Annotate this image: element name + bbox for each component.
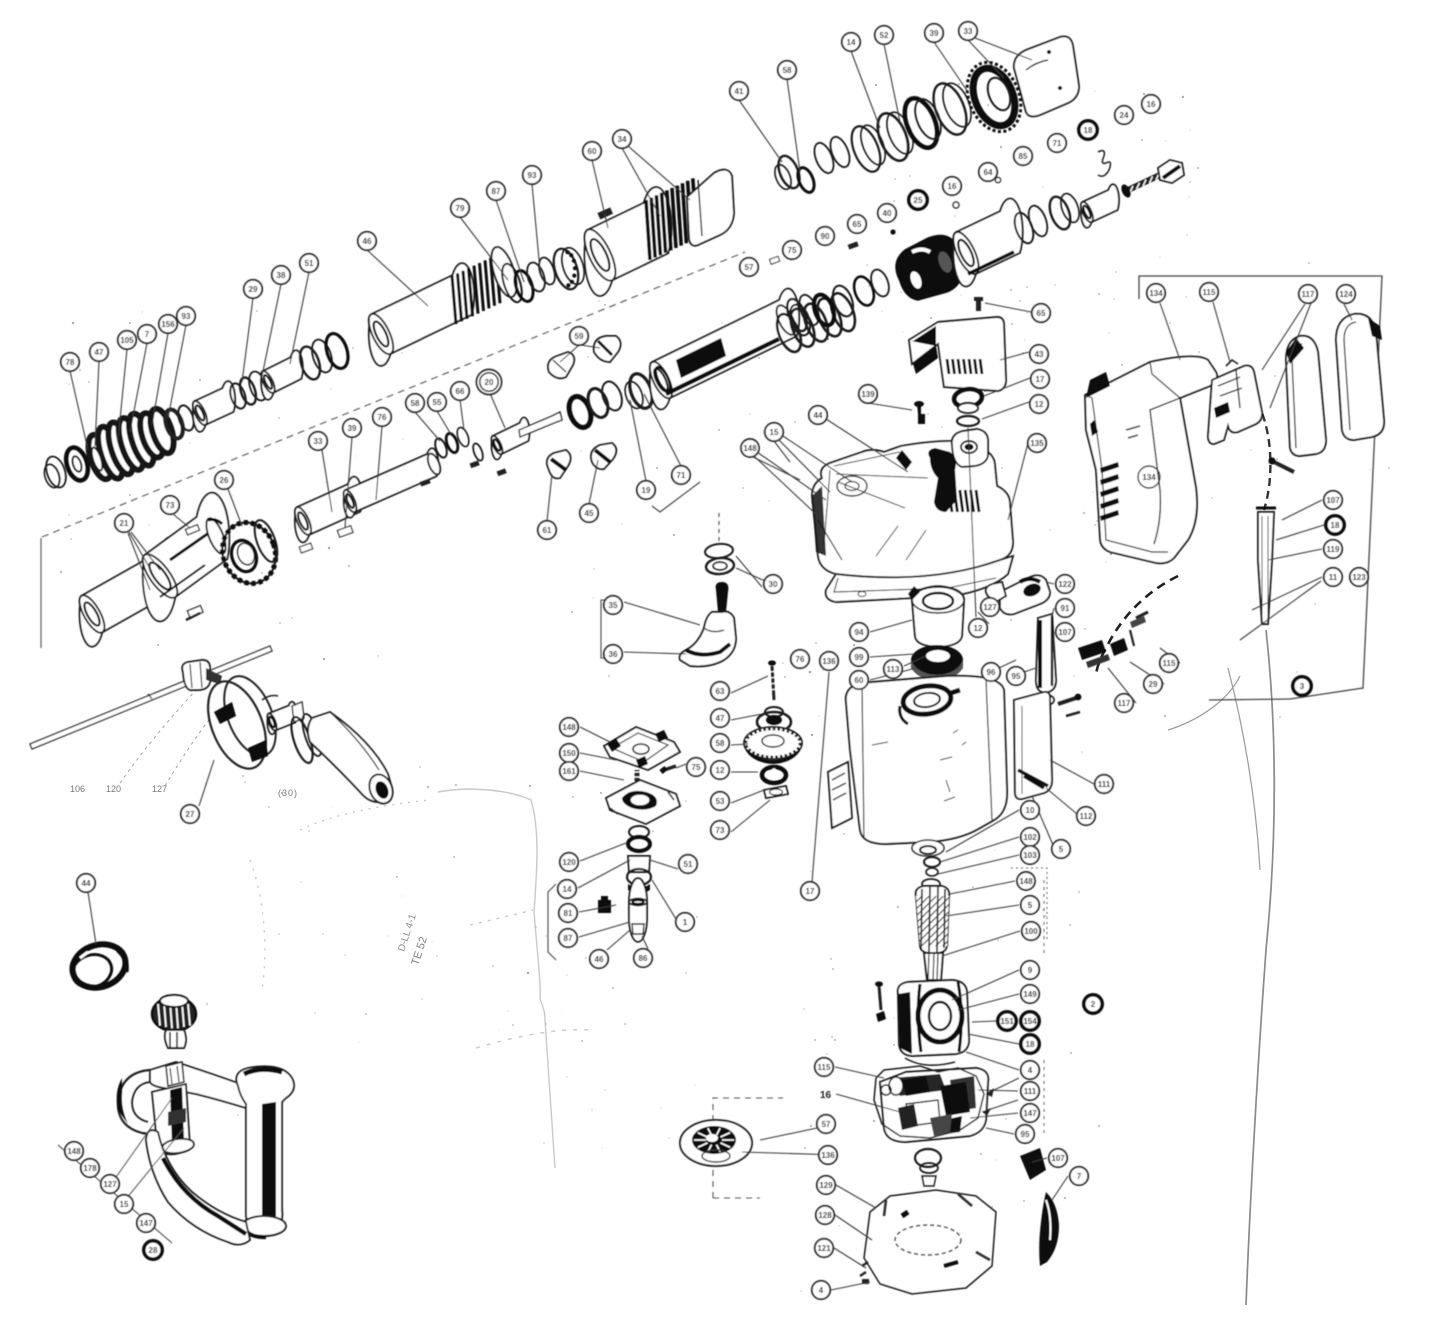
svg-text:4: 4	[1028, 1066, 1033, 1075]
svg-text:148: 148	[743, 444, 757, 453]
svg-text:119: 119	[1327, 545, 1340, 554]
svg-text:105: 105	[120, 336, 134, 345]
svg-text:139: 139	[861, 390, 875, 399]
svg-text:134: 134	[1149, 289, 1163, 298]
svg-text:55: 55	[433, 398, 442, 407]
svg-text:178: 178	[83, 1164, 97, 1173]
svg-text:5: 5	[1028, 901, 1033, 910]
svg-text:4: 4	[819, 1286, 824, 1295]
svg-text:2: 2	[1091, 1000, 1096, 1009]
svg-text:39: 39	[930, 29, 939, 38]
svg-text:10: 10	[1026, 806, 1035, 815]
svg-text:66: 66	[456, 387, 465, 396]
svg-text:51: 51	[305, 259, 314, 268]
svg-text:150: 150	[562, 749, 576, 758]
svg-text:58: 58	[411, 399, 420, 408]
svg-text:86: 86	[639, 954, 648, 963]
svg-text:134: 134	[1142, 473, 1156, 482]
svg-text:112: 112	[1080, 812, 1093, 821]
svg-text:76: 76	[796, 655, 805, 664]
svg-text:85: 85	[1019, 152, 1028, 161]
svg-text:36: 36	[609, 650, 618, 659]
svg-text:123: 123	[1352, 573, 1366, 582]
svg-text:25: 25	[914, 196, 923, 205]
svg-text:60: 60	[588, 147, 597, 156]
svg-text:103: 103	[1023, 851, 1037, 860]
svg-text:128: 128	[818, 1211, 832, 1220]
svg-text:3: 3	[1300, 682, 1305, 691]
svg-text:75: 75	[788, 246, 797, 255]
svg-text:30: 30	[769, 580, 778, 589]
svg-text:46: 46	[363, 237, 372, 246]
svg-text:64: 64	[984, 168, 993, 177]
svg-text:40: 40	[883, 209, 892, 218]
svg-text:26: 26	[220, 476, 229, 485]
svg-text:129: 129	[819, 1181, 833, 1190]
svg-text:148: 148	[1019, 877, 1033, 886]
svg-text:95: 95	[1021, 1130, 1030, 1139]
svg-text:87: 87	[564, 934, 573, 943]
svg-text:117: 117	[1118, 699, 1131, 708]
svg-text:65: 65	[1037, 309, 1046, 318]
svg-text:115: 115	[818, 1063, 831, 1072]
svg-text:58: 58	[783, 66, 792, 75]
svg-text:117: 117	[1302, 290, 1315, 299]
svg-text:16: 16	[820, 1090, 832, 1101]
svg-text:156: 156	[161, 320, 175, 329]
svg-text:154: 154	[1023, 1017, 1037, 1026]
svg-text:24: 24	[1120, 111, 1129, 120]
svg-text:18: 18	[1084, 126, 1093, 135]
svg-text:38: 38	[277, 271, 286, 280]
svg-text:45: 45	[585, 509, 594, 518]
svg-text:12: 12	[1035, 400, 1044, 409]
svg-text:147: 147	[139, 1219, 153, 1228]
svg-text:71: 71	[677, 471, 686, 480]
svg-text:90: 90	[821, 232, 830, 241]
svg-text:148: 148	[67, 1147, 81, 1156]
svg-text:29: 29	[1149, 680, 1158, 689]
svg-text:136: 136	[821, 1151, 835, 1160]
svg-text:96: 96	[987, 668, 996, 677]
svg-text:79: 79	[456, 204, 465, 213]
svg-text:12: 12	[716, 766, 725, 775]
svg-text:113: 113	[887, 665, 900, 674]
svg-text:115: 115	[1163, 659, 1176, 668]
svg-text:151: 151	[1000, 1017, 1014, 1026]
svg-text:99: 99	[855, 653, 864, 662]
svg-text:29: 29	[249, 285, 258, 294]
svg-text:17: 17	[806, 887, 815, 896]
svg-text:63: 63	[716, 687, 725, 696]
svg-text:81: 81	[564, 909, 573, 918]
svg-text:15: 15	[120, 1200, 129, 1209]
svg-text:71: 71	[1053, 139, 1062, 148]
svg-text:51: 51	[684, 860, 693, 869]
svg-text:127: 127	[103, 1180, 117, 1189]
svg-text:18: 18	[1331, 521, 1340, 530]
svg-text:5: 5	[1059, 845, 1064, 854]
svg-text:102: 102	[1023, 833, 1037, 842]
svg-text:120: 120	[562, 858, 576, 867]
svg-text:20: 20	[485, 378, 494, 387]
svg-text:136: 136	[822, 657, 836, 666]
svg-text:73: 73	[716, 826, 725, 835]
svg-text:17: 17	[1036, 375, 1045, 384]
svg-text:147: 147	[1023, 1109, 1037, 1118]
svg-text:58: 58	[716, 739, 725, 748]
svg-text:100: 100	[1024, 927, 1038, 936]
svg-text:16: 16	[1147, 100, 1156, 109]
svg-text:19: 19	[642, 486, 651, 495]
svg-text:33: 33	[964, 27, 973, 36]
svg-text:16: 16	[948, 182, 957, 191]
svg-text:46: 46	[595, 955, 604, 964]
svg-text:47: 47	[716, 714, 725, 723]
svg-text:59: 59	[575, 332, 584, 341]
svg-text:44: 44	[82, 879, 91, 888]
svg-text:60: 60	[855, 676, 864, 685]
svg-text:12: 12	[974, 624, 983, 633]
svg-text:122: 122	[1058, 580, 1072, 589]
svg-text:7: 7	[1077, 1172, 1082, 1181]
svg-text:33: 33	[314, 437, 323, 446]
svg-text:61: 61	[543, 526, 552, 535]
svg-text:28: 28	[149, 1246, 158, 1255]
svg-text:41: 41	[735, 87, 744, 96]
svg-text:47: 47	[95, 348, 104, 357]
svg-text:75: 75	[692, 763, 701, 772]
svg-text:93: 93	[528, 171, 537, 180]
svg-text:148: 148	[562, 723, 576, 732]
svg-text:106: 106	[70, 784, 85, 794]
svg-text:127: 127	[983, 603, 997, 612]
svg-text:161: 161	[562, 767, 576, 776]
svg-text:111: 111	[1024, 1087, 1037, 1096]
svg-text:149: 149	[1023, 990, 1037, 999]
svg-text:15: 15	[770, 428, 779, 437]
svg-text:39: 39	[348, 424, 357, 433]
svg-text:120: 120	[106, 784, 121, 794]
svg-text:44: 44	[814, 411, 823, 420]
svg-text:121: 121	[817, 1244, 831, 1253]
svg-text:14: 14	[563, 885, 572, 894]
svg-text:115: 115	[1203, 288, 1216, 297]
svg-text:135: 135	[1030, 439, 1044, 448]
svg-text:27: 27	[186, 810, 195, 819]
svg-text:111: 111	[1098, 780, 1111, 789]
svg-text:43: 43	[1035, 350, 1044, 359]
svg-text:78: 78	[66, 358, 75, 367]
svg-text:1: 1	[683, 918, 688, 927]
svg-text:124: 124	[1339, 290, 1353, 299]
svg-text:57: 57	[745, 263, 754, 272]
svg-text:18: 18	[1026, 1040, 1035, 1049]
svg-text:7: 7	[145, 330, 150, 339]
svg-text:35: 35	[609, 601, 618, 610]
svg-text:52: 52	[880, 31, 889, 40]
svg-text:95: 95	[1012, 672, 1021, 681]
svg-text:107: 107	[1326, 496, 1340, 505]
svg-text:14: 14	[847, 38, 856, 47]
svg-text:21: 21	[120, 519, 129, 528]
svg-text:94: 94	[855, 628, 864, 637]
svg-text:107: 107	[1051, 1154, 1065, 1163]
svg-text:57: 57	[822, 1120, 831, 1129]
svg-text:65: 65	[853, 220, 862, 229]
svg-text:53: 53	[716, 797, 725, 806]
svg-text:11: 11	[1329, 573, 1338, 582]
svg-text:9: 9	[1028, 966, 1033, 975]
svg-text:76: 76	[378, 413, 387, 422]
svg-text:34: 34	[618, 135, 627, 144]
svg-text:73: 73	[166, 501, 175, 510]
svg-text:91: 91	[1061, 604, 1070, 613]
svg-text:107: 107	[1058, 628, 1072, 637]
svg-text:87: 87	[492, 187, 501, 196]
svg-text:93: 93	[182, 312, 191, 321]
